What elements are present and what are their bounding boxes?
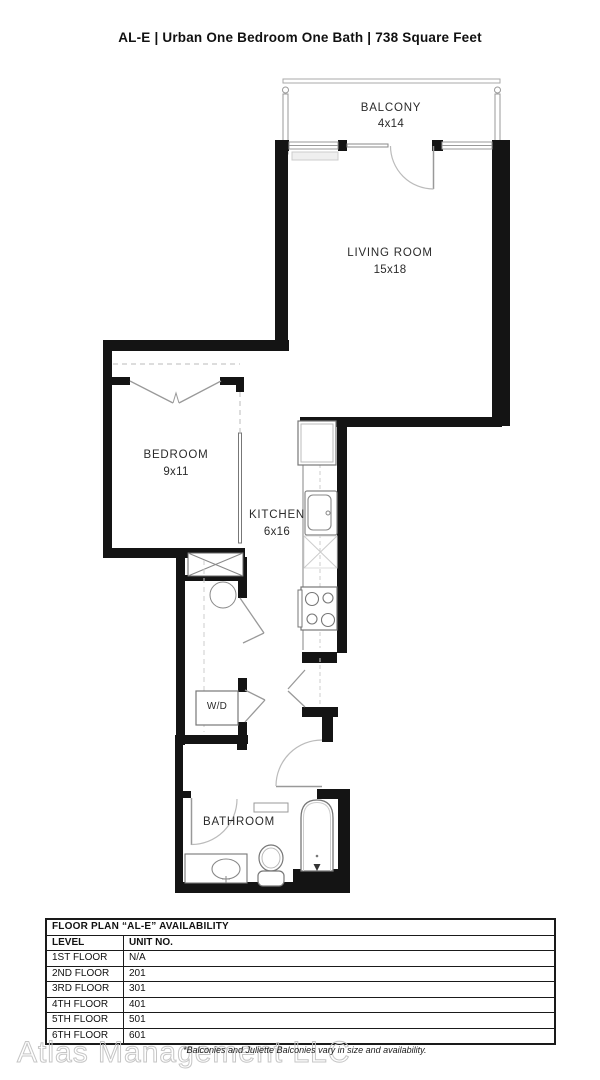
sliding-door [239, 433, 242, 543]
living-room-label: LIVING ROOM [347, 247, 432, 259]
living-room-openings [289, 142, 492, 189]
baseboard-heater [292, 152, 338, 160]
refrigerator [298, 421, 336, 465]
bedroom-label: BEDROOM [143, 449, 208, 461]
entry-door-arc [276, 740, 322, 786]
bath-shelf [254, 803, 288, 812]
bathtub [301, 800, 333, 871]
toilet-tank [258, 871, 284, 886]
hall-table [210, 582, 236, 608]
table-row: 5TH FLOOR 501 [46, 1013, 555, 1029]
entry-details [276, 740, 322, 787]
laundry-label: W/D [207, 701, 227, 712]
toilet-bowl [259, 845, 283, 871]
unit-cell: 301 [124, 982, 556, 998]
level-cell: 5TH FLOOR [46, 1013, 124, 1029]
table-row: 2ND FLOOR 201 [46, 966, 555, 982]
unit-cell: 401 [124, 997, 556, 1013]
unit-cell: 501 [124, 1013, 556, 1029]
level-cell: 2ND FLOOR [46, 966, 124, 982]
column-header-unit: UNIT NO. [124, 935, 556, 951]
availability-table: FLOOR PLAN “AL-E” AVAILABILITY LEVEL UNI… [45, 918, 556, 1045]
floor-plan-page: AL-E | Urban One Bedroom One Bath | 738 … [0, 0, 600, 1080]
disclaimer-text: *Balconies and Juliette Balconies vary i… [183, 1045, 426, 1055]
bathroom-label: BATHROOM [203, 816, 275, 828]
bedroom-dims: 9x11 [163, 466, 188, 478]
living-room-dims: 15x18 [374, 264, 407, 276]
table-row: 3RD FLOOR 301 [46, 982, 555, 998]
kitchen-label: KITCHEN [249, 509, 305, 521]
level-cell: 1ST FLOOR [46, 951, 124, 967]
unit-cell: N/A [124, 951, 556, 967]
kitchen-door [288, 670, 305, 707]
column-header-level: LEVEL [46, 935, 124, 951]
french-door-leaves [130, 381, 221, 403]
unit-cell: 201 [124, 966, 556, 982]
table-row: 4TH FLOOR 401 [46, 997, 555, 1013]
level-cell: 4TH FLOOR [46, 997, 124, 1013]
level-cell: 3RD FLOOR [46, 982, 124, 998]
balcony-label: BALCONY [361, 102, 422, 114]
kitchen-dims: 6x16 [264, 526, 290, 538]
balcony-door-arc [391, 146, 434, 189]
laundry-door [245, 690, 265, 722]
availability-table-title: FLOOR PLAN “AL-E” AVAILABILITY [46, 919, 555, 935]
table-row: 1ST FLOOR N/A [46, 951, 555, 967]
kitchen-details [288, 421, 337, 707]
hall-door [240, 598, 264, 643]
balcony-dims: 4x14 [378, 118, 404, 130]
